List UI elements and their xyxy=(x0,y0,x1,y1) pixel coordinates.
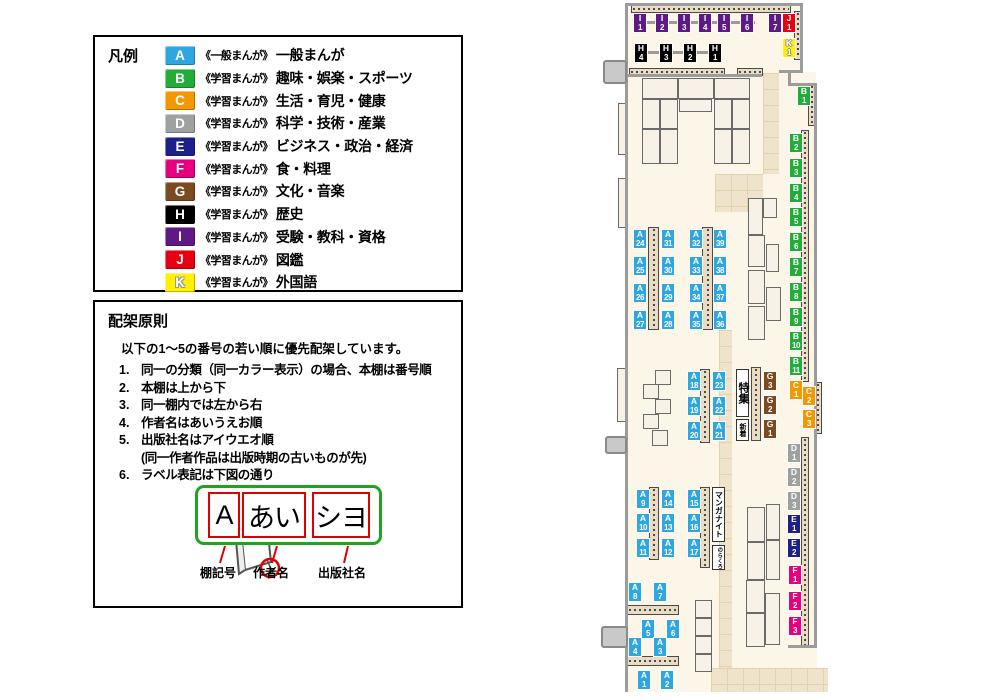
bookshelf-strip xyxy=(700,487,710,568)
shelf-label-code: B xyxy=(790,308,802,317)
shelf-label-A29: A29 xyxy=(661,283,675,303)
shelf-label-number: 7 xyxy=(790,267,802,276)
shelf-label-code: A xyxy=(690,230,702,239)
shelf-label-code: A xyxy=(714,230,726,239)
table-box xyxy=(714,78,750,99)
shelf-label-D2: D2 xyxy=(787,467,801,487)
shelf-label-code: A xyxy=(690,311,702,320)
shelf-label-B3: B3 xyxy=(789,158,803,178)
shelf-label-number: 1 xyxy=(638,680,650,689)
shelf-label-code: A xyxy=(634,257,646,266)
shelf-label-number: 7 xyxy=(769,23,781,32)
table-box xyxy=(642,78,678,99)
shelf-label-number: 16 xyxy=(688,523,700,532)
shelf-label-code: A xyxy=(688,397,700,406)
shelf-label-F3: F3 xyxy=(788,616,802,636)
shelf-label-number: 11 xyxy=(637,548,649,557)
table-box xyxy=(642,99,660,129)
shelf-label-A20: A20 xyxy=(687,421,701,441)
shelf-label-A9: A9 xyxy=(636,489,650,509)
shelf-label-number: 10 xyxy=(790,341,802,350)
table-box xyxy=(695,636,712,654)
shelf-label-number: 20 xyxy=(688,431,700,440)
shelf-label-number: 6 xyxy=(790,242,802,251)
shelf-label-code: A xyxy=(638,671,650,680)
shelf-row-line xyxy=(633,21,755,24)
shelf-label-A32: A32 xyxy=(689,229,703,249)
bookshelf-strip xyxy=(649,487,659,560)
shelf-label-number: 2 xyxy=(803,396,815,405)
shelf-label-A37: A37 xyxy=(713,283,727,303)
shelf-label-code: F xyxy=(789,617,801,626)
shelf-label-code: K xyxy=(783,39,795,48)
shelf-label-H2: H2 xyxy=(683,43,697,63)
shelf-label-A18: A18 xyxy=(687,371,701,391)
shelf-label-number: 25 xyxy=(634,266,646,275)
shelf-label-code: B xyxy=(790,357,802,366)
shelf-label-number: 2 xyxy=(788,548,800,557)
shelf-label-number: 4 xyxy=(699,23,711,32)
table-box xyxy=(655,370,671,385)
shelf-label-B7: B7 xyxy=(789,257,803,277)
shelf-label-I5: I5 xyxy=(717,13,731,33)
shelf-label-number: 5 xyxy=(718,23,730,32)
wall xyxy=(814,83,817,648)
new-arrivals-sign: 新着 xyxy=(736,419,749,441)
shelf-label-A33: A33 xyxy=(689,256,703,276)
shelf-label-B2: B2 xyxy=(789,133,803,153)
shelf-label-number: 1 xyxy=(789,575,801,584)
shelf-label-code: A xyxy=(654,583,666,592)
shelf-label-number: 3 xyxy=(660,53,672,62)
shelf-label-code: A xyxy=(634,284,646,293)
table-box xyxy=(660,129,678,164)
shelf-label-code: H xyxy=(635,44,647,53)
shelf-label-code: G xyxy=(764,396,776,405)
shelf-label-number: 7 xyxy=(654,592,666,601)
bookshelf-strip xyxy=(627,656,679,666)
bookshelf-strip xyxy=(700,369,710,443)
shelf-label-number: 3 xyxy=(789,626,801,635)
shelf-label-E2: E2 xyxy=(787,538,801,558)
shelf-label-A13: A13 xyxy=(661,513,675,533)
shelf-label-code: B xyxy=(790,159,802,168)
shelf-label-code: E xyxy=(788,539,800,548)
shelf-label-C2: C2 xyxy=(802,386,816,406)
shelf-label-code: A xyxy=(661,671,673,680)
shelf-label-code: G xyxy=(764,420,776,429)
shelf-label-number: 3 xyxy=(678,23,690,32)
wall xyxy=(626,3,803,6)
shelf-label-number: 28 xyxy=(662,320,674,329)
shelf-label-I7: I7 xyxy=(768,13,782,33)
shelf-label-F1: F1 xyxy=(788,565,802,585)
shelf-label-A12: A12 xyxy=(661,538,675,558)
table-box xyxy=(660,99,678,129)
shelf-label-number: 13 xyxy=(662,523,674,532)
bookshelf-strip xyxy=(751,367,761,441)
table-box xyxy=(642,129,660,164)
shelf-label-number: 21 xyxy=(713,431,725,440)
table-box xyxy=(714,99,732,129)
shelf-label-number: 36 xyxy=(714,320,726,329)
shelf-label-number: 3 xyxy=(764,381,776,390)
shelf-label-code: C xyxy=(790,381,802,390)
shelf-label-number: 2 xyxy=(788,477,800,486)
shelf-label-code: E xyxy=(788,515,800,524)
bookshelf-strip xyxy=(648,227,659,330)
table-box xyxy=(695,654,712,672)
table-box xyxy=(643,384,659,399)
shelf-label-A35: A35 xyxy=(689,310,703,330)
table-box xyxy=(748,198,763,235)
shelf-label-number: 6 xyxy=(741,23,753,32)
walkway-tiles xyxy=(711,668,828,692)
shelf-label-code: A xyxy=(629,638,641,647)
shelf-label-B11: B11 xyxy=(789,356,803,376)
shelf-label-A5: A5 xyxy=(641,619,655,639)
shelf-label-code: A xyxy=(688,372,700,381)
table-box xyxy=(766,244,779,272)
shelf-label-number: 18 xyxy=(688,381,700,390)
shelf-label-number: 2 xyxy=(661,680,673,689)
shelf-label-code: I xyxy=(656,14,668,23)
shelf-label-G2: G2 xyxy=(763,395,777,415)
shelf-label-code: A xyxy=(714,311,726,320)
norakuro-sign: のらくろ xyxy=(712,545,725,570)
wall xyxy=(800,3,803,73)
shelf-label-number: 2 xyxy=(684,53,696,62)
shelf-label-A26: A26 xyxy=(633,283,647,303)
shelf-label-H1: H1 xyxy=(708,43,722,63)
shelf-label-A36: A36 xyxy=(713,310,727,330)
shelf-label-code: D xyxy=(788,492,800,501)
shelf-label-B1: B1 xyxy=(797,86,811,106)
shelf-label-A30: A30 xyxy=(661,256,675,276)
shelf-label-code: F xyxy=(789,566,801,575)
shelf-label-code: B xyxy=(790,258,802,267)
shelf-label-A27: A27 xyxy=(633,310,647,330)
shelf-label-A14: A14 xyxy=(661,489,675,509)
table-box xyxy=(748,306,765,340)
shelf-label-A17: A17 xyxy=(687,538,701,558)
table-box xyxy=(746,613,765,647)
shelf-label-D1: D1 xyxy=(787,443,801,463)
walkway-tiles xyxy=(763,73,779,174)
table-box xyxy=(714,129,732,164)
shelf-label-number: 35 xyxy=(690,320,702,329)
shelf-label-code: I xyxy=(741,14,753,23)
shelf-label-number: 1 xyxy=(634,23,646,32)
shelf-label-code: A xyxy=(662,257,674,266)
shelf-label-A38: A38 xyxy=(713,256,727,276)
shelf-label-F2: F2 xyxy=(788,591,802,611)
shelf-label-code: C xyxy=(803,410,815,419)
shelf-label-number: 3 xyxy=(803,419,815,428)
shelf-label-number: 1 xyxy=(790,390,802,399)
table-box xyxy=(766,504,780,540)
shelf-label-I6: I6 xyxy=(740,13,754,33)
table-box xyxy=(763,198,777,218)
shelf-label-number: 15 xyxy=(688,499,700,508)
shelf-label-code: A xyxy=(662,311,674,320)
shelf-label-code: B xyxy=(790,134,802,143)
shelf-label-code: B xyxy=(790,184,802,193)
shelf-label-D3: D3 xyxy=(787,491,801,511)
table-box xyxy=(746,580,765,613)
shelf-label-number: 29 xyxy=(662,293,674,302)
shelf-label-C3: C3 xyxy=(802,409,816,429)
special-feature-sign: 特集 xyxy=(736,369,749,417)
shelf-label-number: 1 xyxy=(764,429,776,438)
shelf-label-code: A xyxy=(662,490,674,499)
shelf-label-number: 39 xyxy=(714,239,726,248)
shelf-label-B6: B6 xyxy=(789,232,803,252)
door xyxy=(605,436,627,454)
table-box xyxy=(695,618,712,636)
shelf-label-code: I xyxy=(678,14,690,23)
shelf-label-number: 34 xyxy=(690,293,702,302)
shelf-label-A4: A4 xyxy=(628,637,642,657)
shelf-label-code: A xyxy=(690,257,702,266)
table-box xyxy=(766,287,781,321)
shelf-label-code: B xyxy=(790,208,802,217)
table-box xyxy=(732,99,750,129)
shelf-label-A1: A1 xyxy=(637,670,651,690)
shelf-label-code: B xyxy=(790,233,802,242)
shelf-label-number: 1 xyxy=(788,453,800,462)
table-box xyxy=(652,430,668,446)
shelf-label-A8: A8 xyxy=(628,582,642,602)
shelf-label-code: A xyxy=(662,284,674,293)
shelf-label-H4: H4 xyxy=(634,43,648,63)
shelf-label-number: 1 xyxy=(709,53,721,62)
door xyxy=(601,626,628,648)
shelf-label-A25: A25 xyxy=(633,256,647,276)
shelf-label-code: A xyxy=(654,638,666,647)
shelf-label-B10: B10 xyxy=(789,331,803,351)
shelf-label-A24: A24 xyxy=(633,229,647,249)
door xyxy=(603,60,627,84)
table-box xyxy=(765,593,780,645)
floor-map: I1I2I3I4I5I6I7J1K1H4H3H2H1B1B2B3B4B5B6B7… xyxy=(0,0,1000,700)
shelf-label-B9: B9 xyxy=(789,307,803,327)
shelf-label-number: 1 xyxy=(788,524,800,533)
shelf-label-code: A xyxy=(714,257,726,266)
shelf-label-code: A xyxy=(714,284,726,293)
shelf-label-number: 6 xyxy=(667,629,679,638)
shelf-label-number: 23 xyxy=(713,381,725,390)
shelf-label-A15: A15 xyxy=(687,489,701,509)
shelf-label-number: 9 xyxy=(790,317,802,326)
shelf-label-code: A xyxy=(662,539,674,548)
shelf-label-I4: I4 xyxy=(698,13,712,33)
shelf-label-number: 1 xyxy=(783,23,795,32)
shelf-label-number: 1 xyxy=(783,48,795,57)
shelf-label-I2: I2 xyxy=(655,13,669,33)
shelf-label-number: 4 xyxy=(635,53,647,62)
shelf-label-code: C xyxy=(803,387,815,396)
shelf-label-A31: A31 xyxy=(661,229,675,249)
shelf-label-code: I xyxy=(769,14,781,23)
shelf-label-number: 31 xyxy=(662,239,674,248)
wall xyxy=(626,74,762,77)
shelf-label-code: A xyxy=(688,514,700,523)
shelf-label-number: 26 xyxy=(634,293,646,302)
shelf-label-K1: K1 xyxy=(782,38,796,58)
shelf-label-code: A xyxy=(713,422,725,431)
shelf-label-code: A xyxy=(642,620,654,629)
table-box xyxy=(655,399,671,414)
shelf-label-number: 2 xyxy=(789,601,801,610)
shelf-label-number: 8 xyxy=(629,592,641,601)
shelf-label-number: 33 xyxy=(690,266,702,275)
shelf-label-number: 22 xyxy=(713,406,725,415)
shelf-label-code: A xyxy=(629,583,641,592)
shelf-label-number: 8 xyxy=(790,292,802,301)
shelf-label-G1: G1 xyxy=(763,419,777,439)
page: { "legend": { "title": "凡例", "items": [ … xyxy=(0,0,1000,700)
shelf-label-A39: A39 xyxy=(713,229,727,249)
shelf-label-code: D xyxy=(788,468,800,477)
bookshelf-strip xyxy=(631,5,791,13)
shelf-label-B5: B5 xyxy=(789,207,803,227)
table-box xyxy=(747,542,765,580)
shelf-label-number: 3 xyxy=(654,647,666,656)
shelf-label-code: A xyxy=(634,311,646,320)
shelf-label-code: G xyxy=(764,372,776,381)
shelf-label-number: 32 xyxy=(690,239,702,248)
table-box xyxy=(748,270,765,304)
table-box xyxy=(679,99,712,112)
shelf-label-code: B xyxy=(790,283,802,292)
shelf-label-code: A xyxy=(662,514,674,523)
shelf-label-code: F xyxy=(789,592,801,601)
table-box xyxy=(643,414,659,429)
shelf-label-code: I xyxy=(718,14,730,23)
shelf-label-number: 12 xyxy=(662,548,674,557)
shelf-label-A7: A7 xyxy=(653,582,667,602)
shelf-label-C1: C1 xyxy=(789,380,803,400)
shelf-label-code: A xyxy=(662,230,674,239)
shelf-label-A34: A34 xyxy=(689,283,703,303)
shelf-label-number: 19 xyxy=(688,406,700,415)
shelf-label-number: 4 xyxy=(629,647,641,656)
shelf-label-number: 2 xyxy=(764,405,776,414)
shelf-label-A6: A6 xyxy=(666,619,680,639)
shelf-label-number: 11 xyxy=(790,366,802,375)
shelf-label-code: A xyxy=(667,620,679,629)
shelf-label-A21: A21 xyxy=(712,421,726,441)
shelf-label-code: H xyxy=(709,44,721,53)
shelf-label-number: 14 xyxy=(662,499,674,508)
shelf-label-code: B xyxy=(790,332,802,341)
shelf-label-number: 17 xyxy=(688,548,700,557)
shelf-label-number: 2 xyxy=(790,143,802,152)
wall xyxy=(788,645,816,648)
shelf-label-code: A xyxy=(637,539,649,548)
shelf-label-code: A xyxy=(713,372,725,381)
shelf-label-number: 37 xyxy=(714,293,726,302)
table-box xyxy=(695,600,712,618)
shelf-label-B8: B8 xyxy=(789,282,803,302)
shelf-label-number: 24 xyxy=(634,239,646,248)
manga-night-sign: マンガナイト xyxy=(712,487,725,542)
shelf-label-A19: A19 xyxy=(687,396,701,416)
shelf-label-number: 2 xyxy=(656,23,668,32)
shelf-label-B4: B4 xyxy=(789,183,803,203)
table-box xyxy=(766,540,780,580)
shelf-label-code: H xyxy=(684,44,696,53)
bookshelf-strip xyxy=(702,227,713,330)
shelf-label-code: I xyxy=(634,14,646,23)
shelf-label-code: A xyxy=(713,397,725,406)
bookshelf-strip xyxy=(801,437,809,647)
shelf-label-number: 30 xyxy=(662,266,674,275)
shelf-label-code: J xyxy=(783,14,795,23)
shelf-label-number: 38 xyxy=(714,266,726,275)
shelf-label-number: 1 xyxy=(798,96,810,105)
shelf-label-code: A xyxy=(688,422,700,431)
shelf-label-number: 5 xyxy=(790,217,802,226)
shelf-label-J1: J1 xyxy=(782,13,796,33)
shelf-label-A23: A23 xyxy=(712,371,726,391)
shelf-label-code: I xyxy=(699,14,711,23)
shelf-label-number: 3 xyxy=(790,168,802,177)
shelf-label-A28: A28 xyxy=(661,310,675,330)
shelf-label-I3: I3 xyxy=(677,13,691,33)
shelf-label-A3: A3 xyxy=(653,637,667,657)
shelf-label-A10: A10 xyxy=(636,513,650,533)
table-box xyxy=(747,507,765,542)
table-box xyxy=(748,235,765,267)
shelf-label-number: 3 xyxy=(788,501,800,510)
shelf-label-number: 10 xyxy=(637,523,649,532)
shelf-label-code: A xyxy=(688,539,700,548)
shelf-label-code: A xyxy=(688,490,700,499)
shelf-label-A22: A22 xyxy=(712,396,726,416)
shelf-label-code: A xyxy=(634,230,646,239)
shelf-label-code: D xyxy=(788,444,800,453)
shelf-label-number: 27 xyxy=(634,320,646,329)
shelf-label-G3: G3 xyxy=(763,371,777,391)
table-box xyxy=(732,129,750,164)
bookshelf-strip xyxy=(627,605,679,615)
shelf-label-number: 9 xyxy=(637,499,649,508)
shelf-label-code: A xyxy=(637,514,649,523)
shelf-label-number: 4 xyxy=(790,193,802,202)
wall xyxy=(779,70,803,73)
shelf-label-I1: I1 xyxy=(633,13,647,33)
shelf-label-A11: A11 xyxy=(636,538,650,558)
shelf-label-E1: E1 xyxy=(787,514,801,534)
shelf-label-code: A xyxy=(637,490,649,499)
table-box xyxy=(678,78,714,99)
shelf-label-H3: H3 xyxy=(659,43,673,63)
shelf-label-code: A xyxy=(690,284,702,293)
shelf-label-code: B xyxy=(798,87,810,96)
shelf-label-A2: A2 xyxy=(660,670,674,690)
shelf-label-code: H xyxy=(660,44,672,53)
shelf-label-A16: A16 xyxy=(687,513,701,533)
